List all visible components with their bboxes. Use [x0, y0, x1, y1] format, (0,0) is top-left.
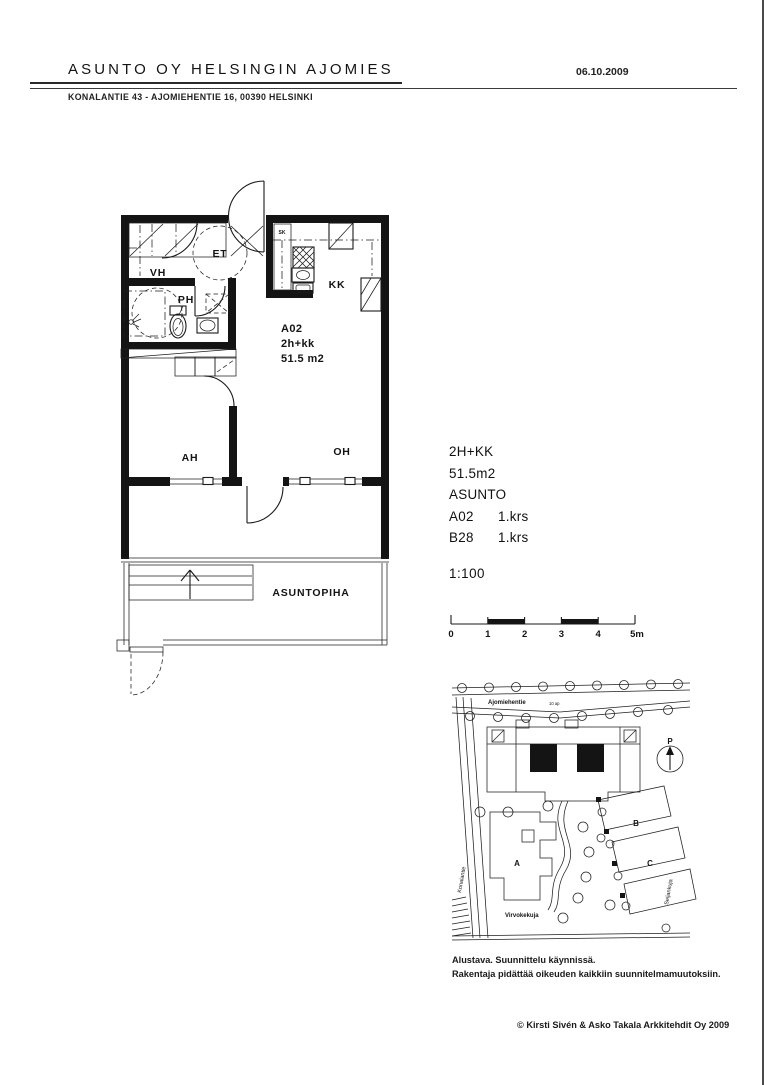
- apartment-unit-row: A021.krs: [449, 506, 529, 528]
- unit-id-b: B28: [449, 527, 498, 549]
- shower-icon: [129, 314, 141, 327]
- wardrobes: [175, 357, 236, 376]
- drawing-sheet: ASUNTO OY HELSINGIN AJOMIES 06.10.2009 K…: [0, 0, 768, 1085]
- scalebar-tick-2: 2: [522, 629, 527, 640]
- room-label-oh: OH: [333, 446, 350, 458]
- drawing-layer: ET VH: [0, 0, 768, 1085]
- entrance-arrow-icon: [181, 570, 199, 599]
- building-label-a: A: [514, 859, 520, 868]
- unit-id-a: A02: [449, 506, 498, 528]
- building-label-b: B: [633, 819, 639, 828]
- stairwell-b-marker: [577, 744, 604, 772]
- apartment-heading: ASUNTO: [449, 484, 529, 506]
- scalebar-tick-1: 1: [485, 629, 491, 640]
- floor-plan: ET VH: [117, 181, 389, 695]
- north-arrow-icon: [657, 746, 683, 772]
- stove-sink-unit: [292, 247, 314, 293]
- scale-bar: 0 1 2 3 4 5m: [448, 615, 644, 640]
- terrace-door: [247, 486, 283, 523]
- room-label-et: ET: [212, 248, 227, 260]
- windows: [170, 478, 362, 485]
- yard-gate: [130, 647, 163, 695]
- yard-planter: [129, 565, 253, 600]
- footer-note-2: Rakentaja pidättää oikeuden kaikkiin suu…: [452, 968, 721, 982]
- drawing-scale: 1:100: [449, 566, 485, 581]
- siteplan-left-street: [452, 697, 488, 938]
- apartment-unit-row: B281.krs: [449, 527, 529, 549]
- unit-id: A02: [281, 323, 302, 335]
- washer-icon: [206, 294, 229, 313]
- room-label-ah: AH: [182, 452, 199, 464]
- unit-type: 2h+kk: [281, 338, 315, 350]
- street-label-bottom: Virvokekuja: [505, 913, 539, 919]
- footer-note-1: Alustava. Suunnittelu käynnissä.: [452, 954, 721, 968]
- unit-floor-a: 1.krs: [498, 509, 529, 524]
- entry-door: [229, 181, 265, 256]
- ah-oh-wall: [229, 406, 237, 477]
- unit-floor-b: 1.krs: [498, 530, 529, 545]
- room-label-ph: PH: [178, 294, 194, 306]
- scalebar-tick-3: 3: [559, 629, 564, 640]
- building-label-c: C: [647, 859, 653, 868]
- copyright-notice: © Kirsti Sivén & Asko Takala Arkkitehdit…: [517, 1020, 729, 1030]
- shower-area: [124, 291, 165, 336]
- siteplan-main-building: [487, 720, 640, 801]
- stairwell-a-marker: [530, 744, 557, 772]
- street-label-right: Seljankuja: [664, 878, 675, 905]
- scalebar-tick-5: 5m: [630, 629, 644, 640]
- apartment-info-block: 2H+KK 51.5m2 ASUNTO A021.krs B281.krs: [449, 441, 529, 549]
- apartment-type: 2H+KK: [449, 441, 529, 463]
- yard: ASUNTOPIHA: [117, 563, 387, 695]
- footer-notes: Alustava. Suunnittelu käynnissä. Rakenta…: [452, 954, 721, 981]
- street-label-top: Ajomiehentie: [488, 700, 526, 706]
- toilet-icon: [170, 306, 186, 338]
- room-label-vh: VH: [150, 267, 166, 279]
- apartment-area: 51.5m2: [449, 463, 529, 485]
- scalebar-tick-4: 4: [596, 629, 602, 640]
- kitchen: [266, 223, 381, 311]
- parking-count: 10 ap: [549, 701, 560, 706]
- ah-door-arc: [204, 376, 234, 406]
- siteplan-paths-trees: [475, 801, 615, 923]
- siteplan-building-a: [490, 812, 556, 900]
- street-label-left: Konalantie: [457, 866, 467, 893]
- site-plan: Ajomiehentie 10 ap P: [452, 680, 696, 941]
- scalebar-tick-0: 0: [448, 629, 453, 640]
- vh-closets: [129, 223, 226, 276]
- unit-area: 51.5 m2: [281, 353, 324, 365]
- yard-label: ASUNTOPIHA: [272, 587, 349, 599]
- room-label-kk: KK: [329, 279, 346, 291]
- closet-label-sk: SK: [279, 230, 286, 236]
- north-label: P: [667, 737, 673, 746]
- ph-bathroom: [121, 278, 236, 358]
- sink-icon: [197, 318, 218, 333]
- unit-id-block: A02 2h+kk 51.5 m2: [281, 323, 324, 365]
